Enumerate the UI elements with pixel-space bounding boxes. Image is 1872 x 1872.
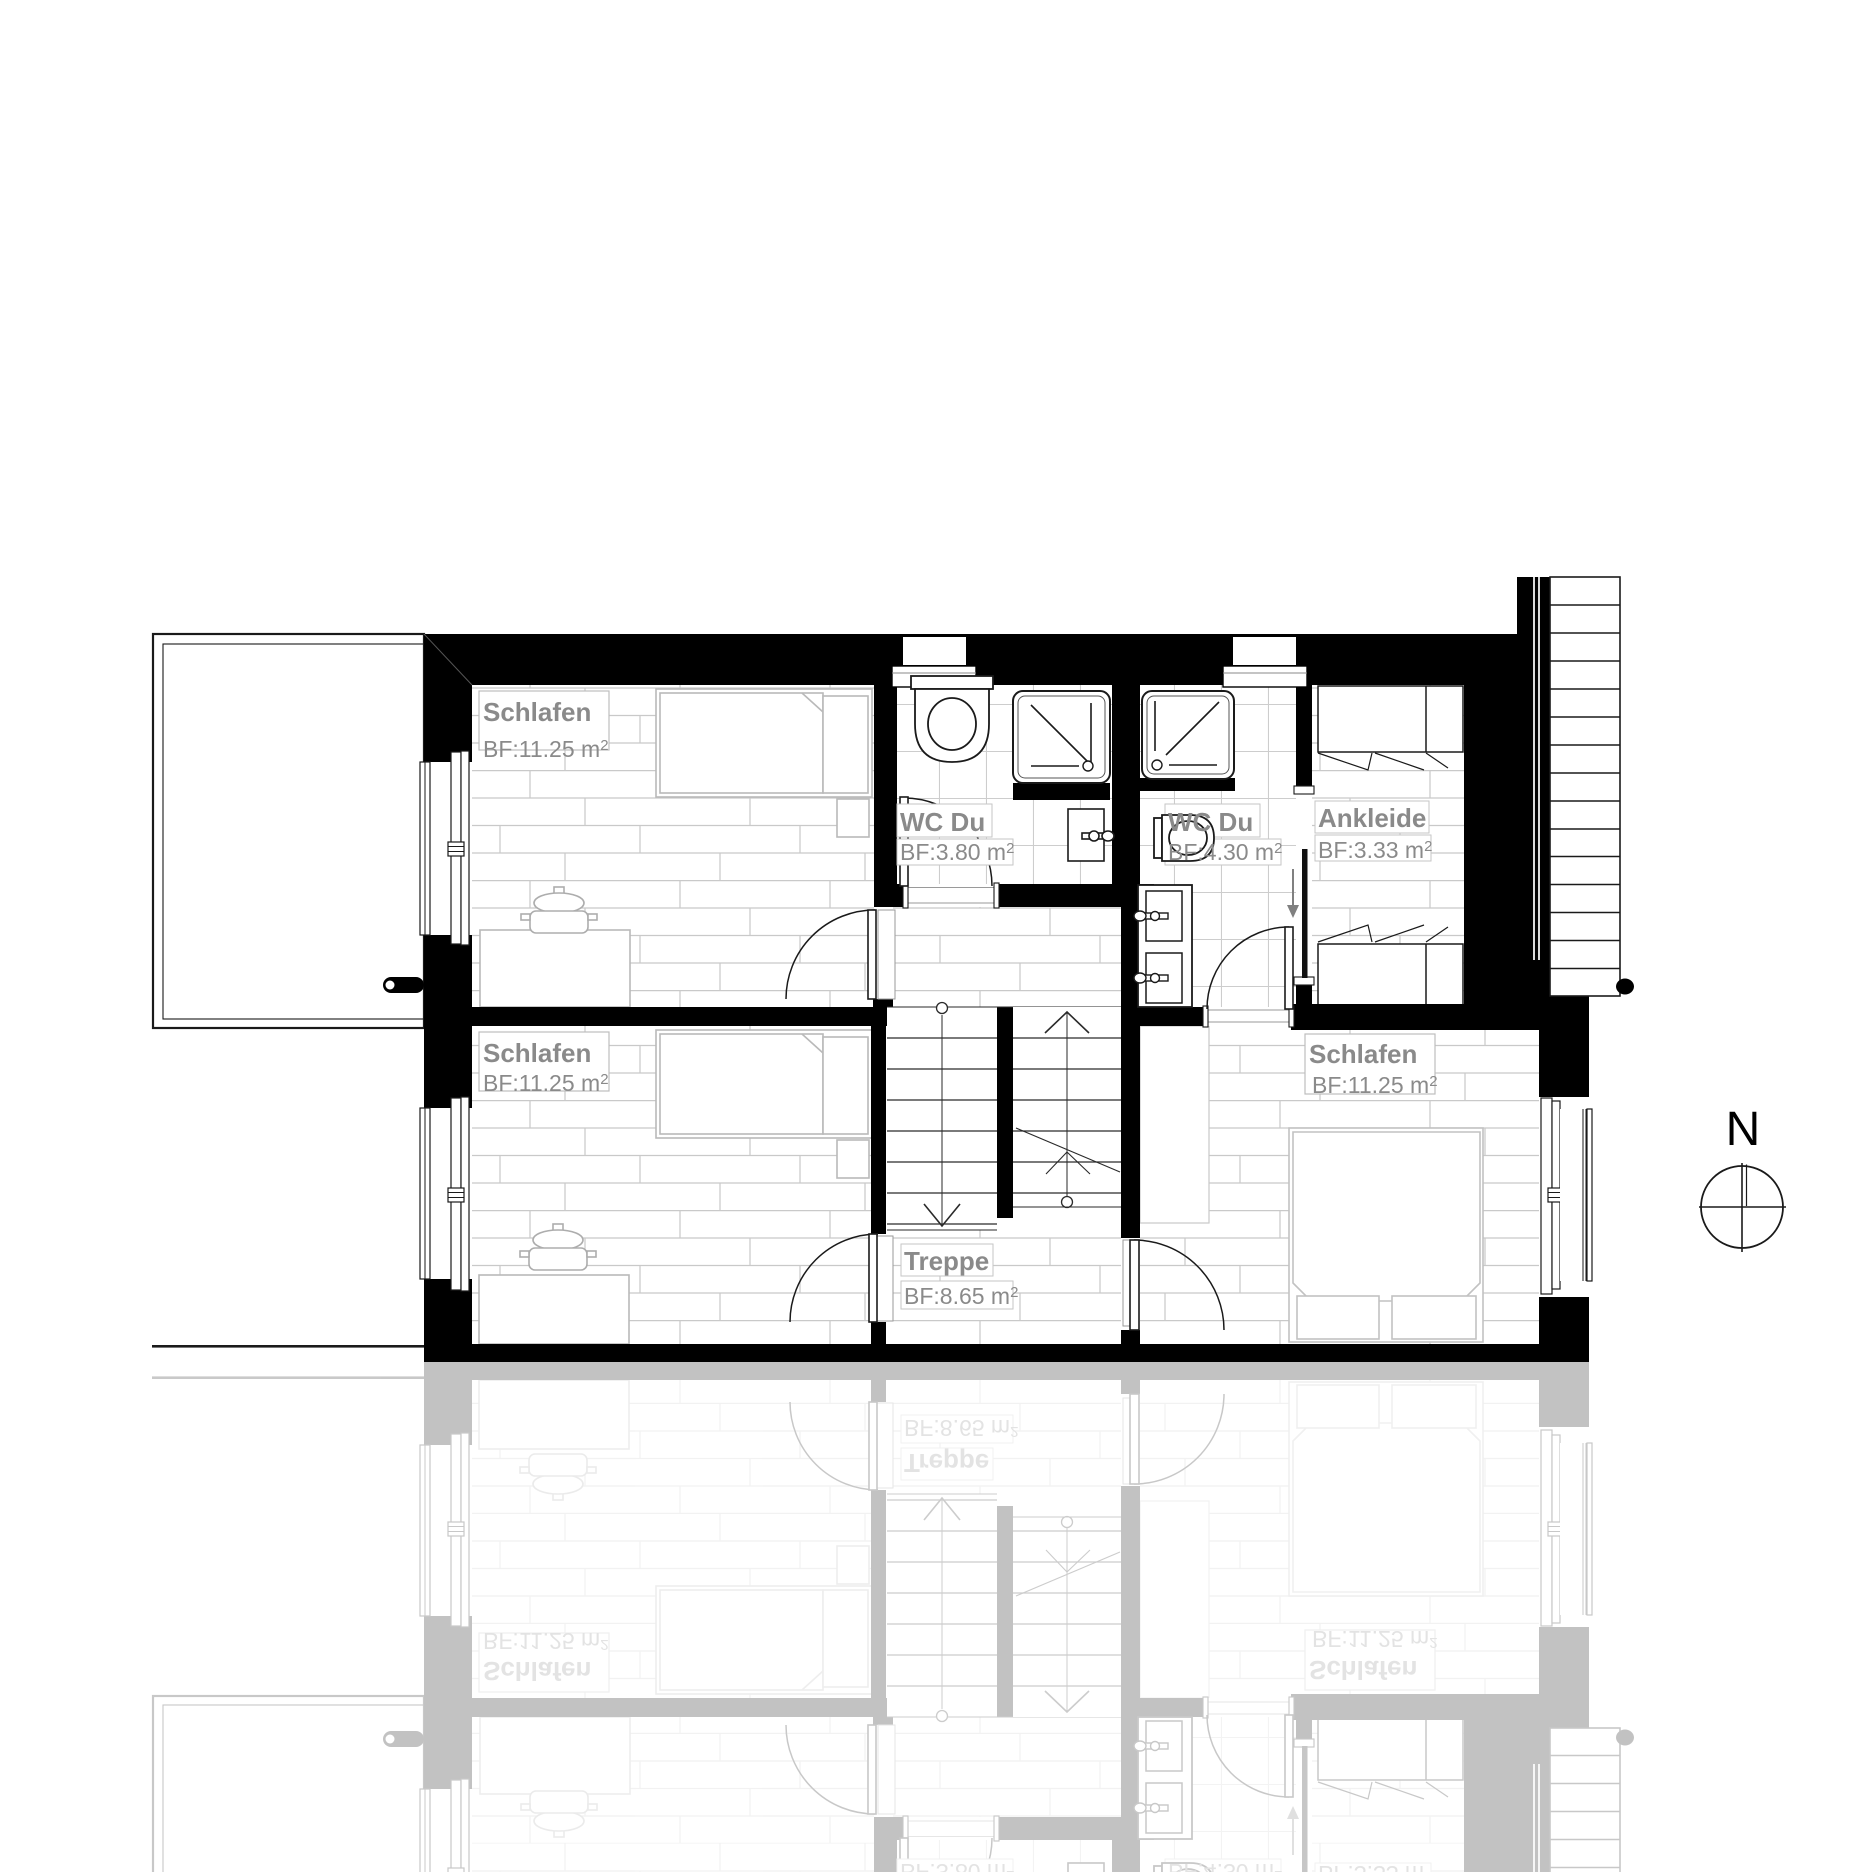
svg-text:BF:3.33 m2: BF:3.33 m2 bbox=[1318, 837, 1432, 863]
svg-text:Ankleide: Ankleide bbox=[1318, 803, 1426, 833]
svg-text:BF:11.25 m2: BF:11.25 m2 bbox=[483, 736, 609, 762]
svg-text:BF:11.25 m2: BF:11.25 m2 bbox=[1312, 1072, 1438, 1098]
svg-text:N: N bbox=[1726, 1103, 1761, 1156]
svg-text:WC Du: WC Du bbox=[900, 807, 985, 837]
svg-text:Treppe: Treppe bbox=[904, 1246, 989, 1276]
svg-text:BF:4.30 m2: BF:4.30 m2 bbox=[1168, 839, 1282, 865]
svg-text:Schlafen: Schlafen bbox=[483, 1038, 591, 1068]
svg-text:BF:11.25 m2: BF:11.25 m2 bbox=[483, 1070, 609, 1096]
svg-text:Schlafen: Schlafen bbox=[483, 697, 591, 727]
svg-text:Schlafen: Schlafen bbox=[1309, 1039, 1417, 1069]
svg-text:WC Du: WC Du bbox=[1168, 807, 1253, 837]
svg-text:BF:3.80 m2: BF:3.80 m2 bbox=[900, 839, 1014, 865]
svg-text:BF:8.65 m2: BF:8.65 m2 bbox=[904, 1283, 1018, 1309]
